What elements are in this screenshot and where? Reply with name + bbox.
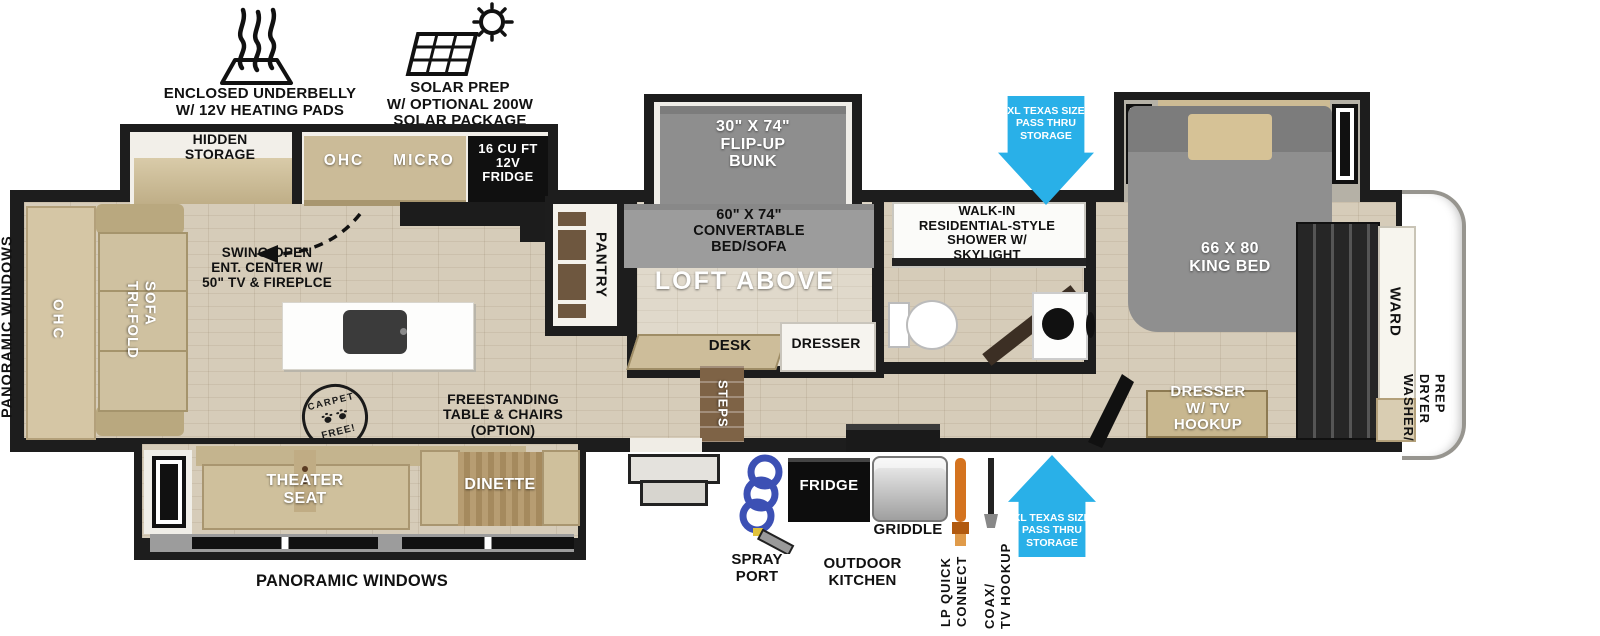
rear-ohc-label: OHC xyxy=(38,258,78,382)
kitchen-ohc-label: OHC xyxy=(312,152,376,169)
pantry-label: PANTRY xyxy=(588,212,614,318)
king-bed-pillow xyxy=(1188,114,1272,160)
coax-cable-icon xyxy=(988,458,994,514)
underbelly-label: ENCLOSED UNDERBELLY W/ 12V HEATING PADS xyxy=(140,86,380,119)
steps-label: STEPS xyxy=(706,370,738,438)
bunkroom-dresser-label: DRESSER xyxy=(778,336,874,351)
coax-connector xyxy=(984,514,998,528)
entry-steps-lower xyxy=(640,480,708,506)
pass-thru-top-label: XL TEXAS SIZE PASS THRU STORAGE xyxy=(1007,105,1084,142)
freestanding-table-label: FREESTANDING TABLE & CHAIRS (OPTION) xyxy=(418,392,588,438)
solar-panel-icon xyxy=(400,2,518,82)
spray-port-label: SPRAY PORT xyxy=(712,552,802,585)
griddle xyxy=(872,456,948,522)
dinette-label: DINETTE xyxy=(440,476,560,494)
swing-open-dashed-arrow xyxy=(248,198,378,268)
theater-seat-label: THEATER SEAT xyxy=(225,472,385,507)
12v-fridge-label: 16 CU FT 12V FRIDGE xyxy=(468,142,548,184)
pass-thru-arrow-down: XL TEXAS SIZE PASS THRU STORAGE xyxy=(998,96,1094,205)
bath-wall-fixture xyxy=(1086,312,1095,338)
bedroom-dresser-tv-label: DRESSER W/ TV HOOKUP xyxy=(1128,384,1288,434)
panoramic-windows-left-label: PANORAMIC WINDOWS xyxy=(0,226,22,428)
panoramic-windows-bottom-label: PANORAMIC WINDOWS xyxy=(252,572,452,590)
living-slide-end-window xyxy=(152,456,186,528)
micro-label: MICRO xyxy=(386,152,462,169)
bedroom-window-right xyxy=(1332,104,1358,184)
island-sink-faucet xyxy=(400,328,407,335)
rv-floorplan-diagram: ENCLOSED UNDERBELLY W/ 12V HEATING PADS … xyxy=(0,0,1600,636)
flip-up-bunk-label: 30" X 74" FLIP-UP BUNK xyxy=(664,118,842,171)
lp-hose-tip xyxy=(955,534,966,546)
toilet-bowl xyxy=(906,300,958,350)
solar-label: SOLAR PREP W/ OPTIONAL 200W SOLAR PACKAG… xyxy=(360,80,560,130)
kitchen-counter-corner xyxy=(520,202,548,242)
trifold-sofa-armrest-top xyxy=(96,204,184,234)
griddle-label: GRIDDLE xyxy=(858,522,958,539)
kitchen-ohc-cabinet xyxy=(304,136,466,206)
heating-pads-icon xyxy=(205,4,305,86)
outdoor-fridge-label: FRIDGE xyxy=(788,478,870,495)
shower-label: WALK-IN RESIDENTIAL-STYLE SHOWER W/ SKYL… xyxy=(880,204,1094,262)
washer-dryer-label: WASHER/ DRYER PREP xyxy=(1398,348,1450,468)
slide-window-2 xyxy=(402,537,574,549)
pantry-shelves xyxy=(558,212,586,318)
trifold-sofa-label: TRI-FOLD SOFA xyxy=(106,250,176,390)
hidden-storage-label: HIDDEN STORAGE xyxy=(146,132,294,161)
lp-hose-icon xyxy=(955,458,966,522)
king-bed-label: 66 X 80 KING BED xyxy=(1158,240,1302,275)
coax-tv-label: COAX/ TV HOOKUP xyxy=(976,538,1020,634)
outdoor-kitchen-recess xyxy=(846,424,940,452)
outdoor-kitchen-label: OUTDOOR KITCHEN xyxy=(800,556,925,589)
entry-door-opening xyxy=(630,438,702,452)
lp-quick-connect-label: LP QUICK CONNECT xyxy=(932,548,976,634)
island-sink xyxy=(343,310,407,354)
pass-thru-arrow-up: XL TEXAS SIZE PASS THRU STORAGE xyxy=(1008,455,1096,557)
pass-thru-bottom-label: XL TEXAS SIZE PASS THRU STORAGE xyxy=(1013,512,1090,549)
loft-above-label: LOFT ABOVE xyxy=(630,268,860,296)
lp-hose-fitting xyxy=(952,522,969,534)
slide-window-1 xyxy=(192,537,378,549)
bath-sink xyxy=(1042,308,1074,340)
convertable-bed-label: 60" X 74" CONVERTABLE BED/SOFA xyxy=(644,208,854,256)
desk-label: DESK xyxy=(690,338,770,355)
front-closet xyxy=(1296,222,1380,440)
